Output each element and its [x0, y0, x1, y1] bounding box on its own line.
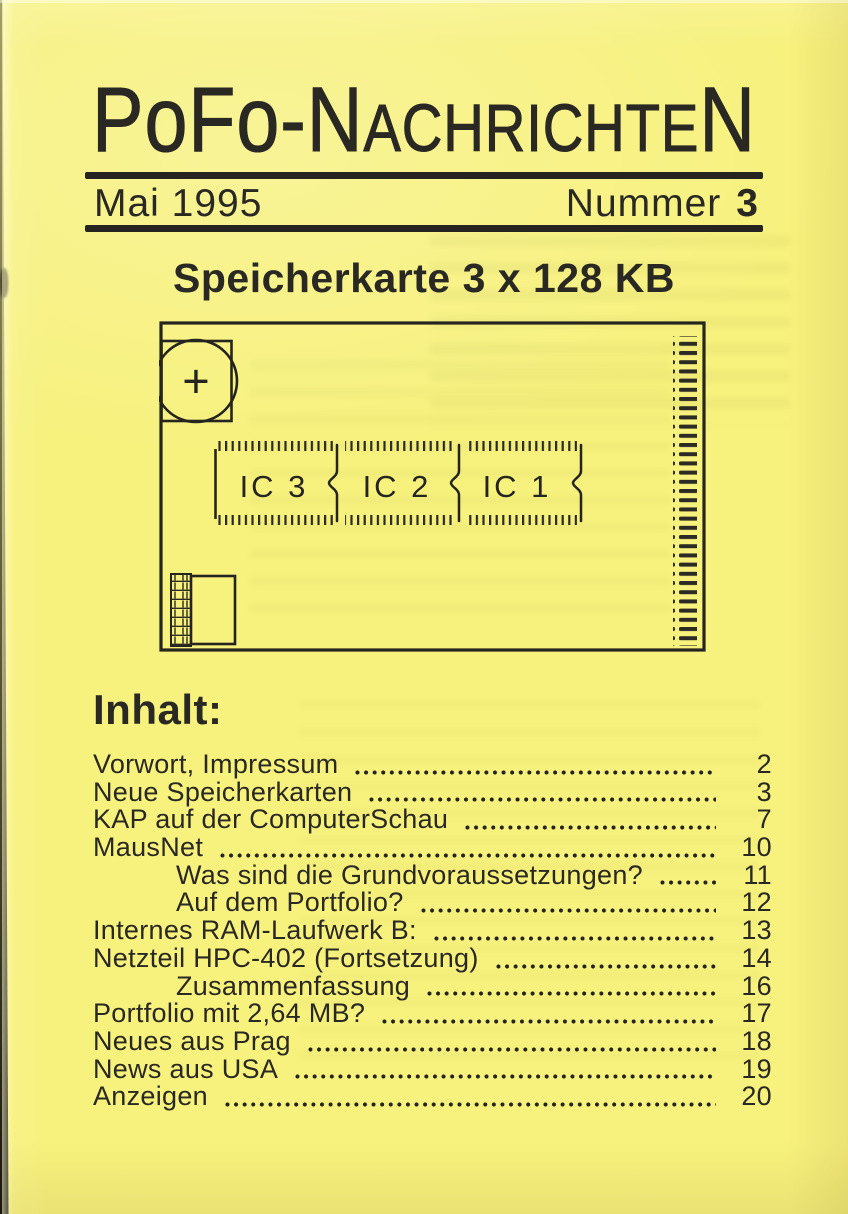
toc-leader-dots: [421, 908, 716, 913]
chip-pins: [345, 515, 455, 525]
toc-item: Zusammenfassung16: [93, 973, 772, 1001]
chip-brace: [329, 445, 337, 521]
chip-brace: [451, 445, 459, 521]
toc-leader-dots: [355, 770, 716, 775]
toc-item: Auf dem Portfolio?12: [93, 889, 772, 917]
toc-item-title: Vorwort, Impressum: [93, 751, 338, 779]
chip-pins: [217, 515, 335, 525]
toc-item-page: 16: [728, 973, 772, 1001]
toc-item: Was sind die Grundvoraussetzungen?11: [93, 862, 772, 890]
chip-label: IC 1: [483, 469, 552, 504]
masthead-title-segment: F: [188, 69, 236, 171]
article-headline: Speicherkarte 3 x 128 KB: [0, 255, 848, 301]
toc-item-title: Was sind die Grundvoraussetzungen?: [93, 862, 643, 890]
toc-item-page: 18: [728, 1028, 772, 1056]
toc-list: Vorwort, Impressum2Neue Speicherkarten3K…: [93, 751, 772, 1111]
chip-pins: [217, 441, 335, 451]
toc-item: Anzeigen20: [93, 1083, 772, 1111]
masthead-divider-top: [85, 172, 763, 179]
toc-item-page: 19: [728, 1056, 772, 1084]
toc-item: MausNet10: [93, 834, 772, 862]
chip-pins: [467, 441, 577, 451]
chip-brace: [573, 445, 581, 521]
masthead-title-segment: ACHRICHTE: [363, 91, 699, 166]
toc-leader-dots: [295, 1074, 716, 1079]
toc-item-title: Neue Speicherkarten: [93, 779, 352, 807]
battery-icon: +: [159, 340, 237, 422]
issue-line: Mai 1995 Nummer3: [85, 183, 763, 225]
toc-leader-dots: [496, 964, 716, 969]
toc-item-title: News aus USA: [93, 1056, 278, 1084]
issue-number: 3: [736, 182, 759, 225]
toc-leader-dots: [434, 936, 716, 941]
toc-leader-dots: [427, 991, 716, 996]
toc-item-page: 20: [728, 1083, 772, 1111]
toc-item-title: Portfolio mit 2,64 MB?: [93, 1000, 365, 1028]
chip-label: IC 3: [240, 469, 309, 504]
battery-plus-symbol: +: [182, 354, 209, 407]
toc-leader-dots: [660, 880, 716, 885]
toc-leader-dots: [465, 825, 716, 830]
toc-item-page: 11: [728, 862, 772, 890]
issue-label: Nummer: [566, 182, 722, 225]
masthead-title-segment: o: [144, 69, 188, 171]
toc-item-page: 17: [728, 1000, 772, 1028]
chip-pins: [345, 441, 455, 451]
toc-item-page: 3: [728, 779, 772, 807]
toc-item-page: 12: [728, 889, 772, 917]
memory-card-diagram: + IC 3 IC 2 IC 1: [159, 321, 707, 653]
toc-item-title: MausNet: [93, 834, 203, 862]
toc-item-title: Neues aus Prag: [93, 1028, 291, 1056]
toc-leader-dots: [382, 1019, 716, 1024]
toc-item-page: 10: [728, 834, 772, 862]
edge-connector-contacts: [673, 336, 697, 646]
chip-label: IC 2: [363, 469, 432, 504]
chip-pins: [467, 515, 577, 525]
solder-pad-component: [171, 574, 235, 646]
solder-pad-ladder: [171, 574, 191, 646]
toc-item-title: Anzeigen: [93, 1083, 208, 1111]
toc-item: Vorwort, Impressum2: [93, 751, 772, 779]
toc-leader-dots: [308, 1047, 716, 1052]
toc-item: Neues aus Prag18: [93, 1028, 772, 1056]
toc-item-page: 2: [728, 751, 772, 779]
toc-item-title: Zusammenfassung: [93, 973, 410, 1001]
toc-heading: Inhalt:: [93, 686, 222, 734]
toc-leader-dots: [220, 853, 716, 858]
toc-leader-dots: [225, 1102, 716, 1107]
masthead-title-segment: o: [236, 69, 280, 171]
toc-item: KAP auf der ComputerSchau7: [93, 806, 772, 834]
memory-chips: IC 3 IC 2 IC 1: [216, 441, 582, 525]
masthead-divider-bottom: [85, 225, 763, 232]
masthead-title-segment: N: [307, 69, 364, 171]
toc-item: Internes RAM-Laufwerk B:13: [93, 917, 772, 945]
component-body: [191, 576, 235, 644]
scan-edge-highlight: [2, 0, 14, 1214]
toc-leader-dots: [369, 797, 716, 802]
toc-item: Netzteil HPC-402 (Fortsetzung)14: [93, 945, 772, 973]
masthead-title-segment: N: [699, 69, 756, 171]
toc-item: Portfolio mit 2,64 MB?17: [93, 1000, 772, 1028]
masthead-title-segment: -: [280, 69, 307, 171]
toc-item-title: Internes RAM-Laufwerk B:: [93, 917, 417, 945]
toc-item-title: Netzteil HPC-402 (Fortsetzung): [93, 945, 479, 973]
issue-number-group: Nummer3: [566, 183, 763, 225]
issue-date: Mai 1995: [85, 183, 262, 225]
toc-item-page: 14: [728, 945, 772, 973]
toc-item-title: Auf dem Portfolio?: [93, 889, 404, 917]
scanned-newsletter-page: PoFo-NACHRICHTEN Mai 1995 Nummer3 Speich…: [0, 0, 848, 1214]
masthead-title-segment: P: [92, 69, 144, 171]
toc-item: News aus USA19: [93, 1056, 772, 1084]
toc-item-title: KAP auf der ComputerSchau: [93, 806, 448, 834]
toc-item-page: 7: [728, 806, 772, 834]
scan-top-highlight: [0, 0, 848, 3]
toc-item: Neue Speicherkarten3: [93, 779, 772, 807]
toc-item-page: 13: [728, 917, 772, 945]
